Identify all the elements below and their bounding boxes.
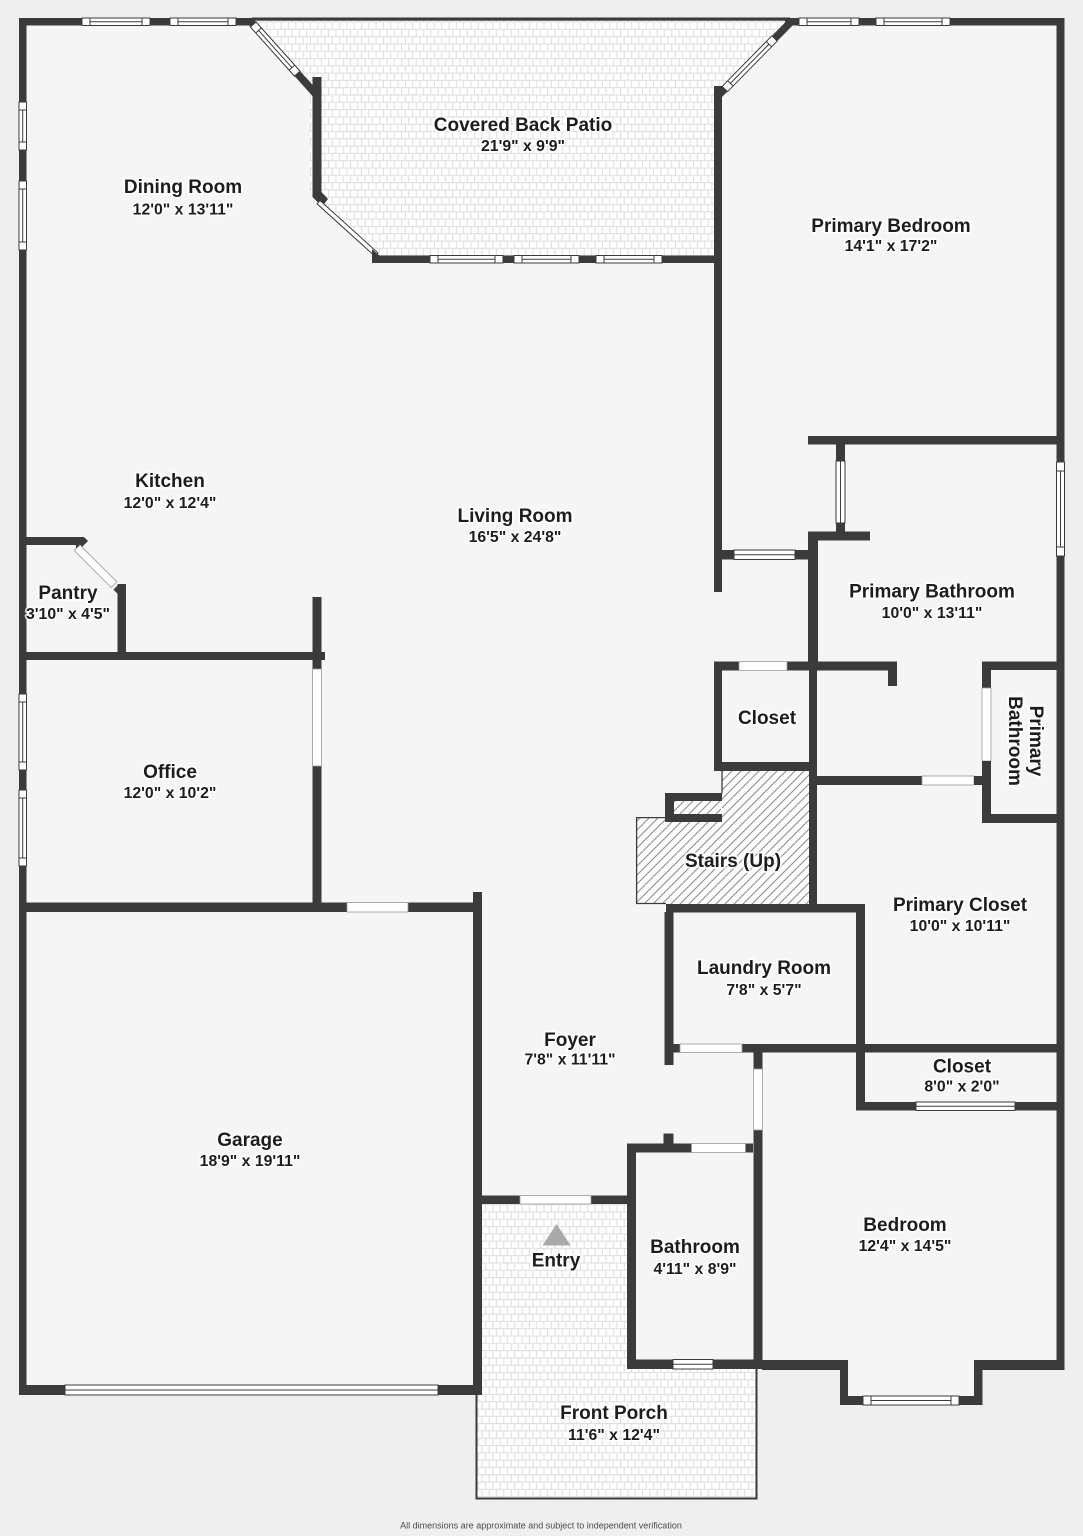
svg-text:Office: Office [143,762,197,783]
svg-text:12'4" x 14'5": 12'4" x 14'5" [859,1238,952,1255]
svg-text:Garage: Garage [217,1130,282,1151]
svg-text:Closet: Closet [933,1057,992,1078]
svg-text:21'9" x 9'9": 21'9" x 9'9" [481,138,565,155]
svg-text:Bathroom: Bathroom [1004,696,1025,786]
svg-text:12'0" x 12'4": 12'0" x 12'4" [124,495,217,512]
svg-text:Primary Bedroom: Primary Bedroom [811,216,970,237]
svg-text:Primary: Primary [1025,706,1046,777]
svg-text:Pantry: Pantry [38,583,98,604]
svg-text:All dimensions are approximate: All dimensions are approximate and subje… [400,1521,682,1531]
svg-text:Covered Back Patio: Covered Back Patio [434,115,612,136]
svg-text:Kitchen: Kitchen [135,471,205,492]
svg-text:Primary Closet: Primary Closet [893,895,1028,916]
svg-text:7'8" x 11'11": 7'8" x 11'11" [524,1052,615,1069]
svg-text:Front Porch: Front Porch [560,1403,668,1424]
svg-text:Foyer: Foyer [544,1030,596,1051]
svg-text:16'5" x 24'8": 16'5" x 24'8" [469,529,562,546]
svg-text:Laundry Room: Laundry Room [697,958,831,979]
svg-text:Living Room: Living Room [457,506,572,527]
svg-text:4'11" x 8'9": 4'11" x 8'9" [653,1261,736,1278]
svg-text:12'0" x 13'11": 12'0" x 13'11" [133,202,234,219]
svg-text:Stairs (Up): Stairs (Up) [685,851,781,872]
svg-text:12'0" x 10'2": 12'0" x 10'2" [124,785,217,802]
svg-text:10'0" x 10'11": 10'0" x 10'11" [910,918,1011,935]
svg-text:3'10" x 4'5": 3'10" x 4'5" [26,606,110,623]
svg-text:Primary Bathroom: Primary Bathroom [849,582,1015,603]
svg-text:Bathroom: Bathroom [650,1237,740,1258]
svg-text:Closet: Closet [738,708,797,729]
svg-text:10'0" x 13'11": 10'0" x 13'11" [882,605,983,622]
svg-text:Dining Room: Dining Room [124,177,242,198]
svg-text:14'1" x 17'2": 14'1" x 17'2" [845,238,938,255]
svg-text:Bedroom: Bedroom [863,1215,946,1236]
svg-text:Entry: Entry [532,1251,581,1272]
svg-text:18'9" x 19'11": 18'9" x 19'11" [200,1153,301,1170]
svg-text:8'0" x 2'0": 8'0" x 2'0" [924,1079,999,1096]
svg-text:11'6" x 12'4": 11'6" x 12'4" [568,1427,660,1444]
svg-text:7'8" x 5'7": 7'8" x 5'7" [726,982,801,999]
